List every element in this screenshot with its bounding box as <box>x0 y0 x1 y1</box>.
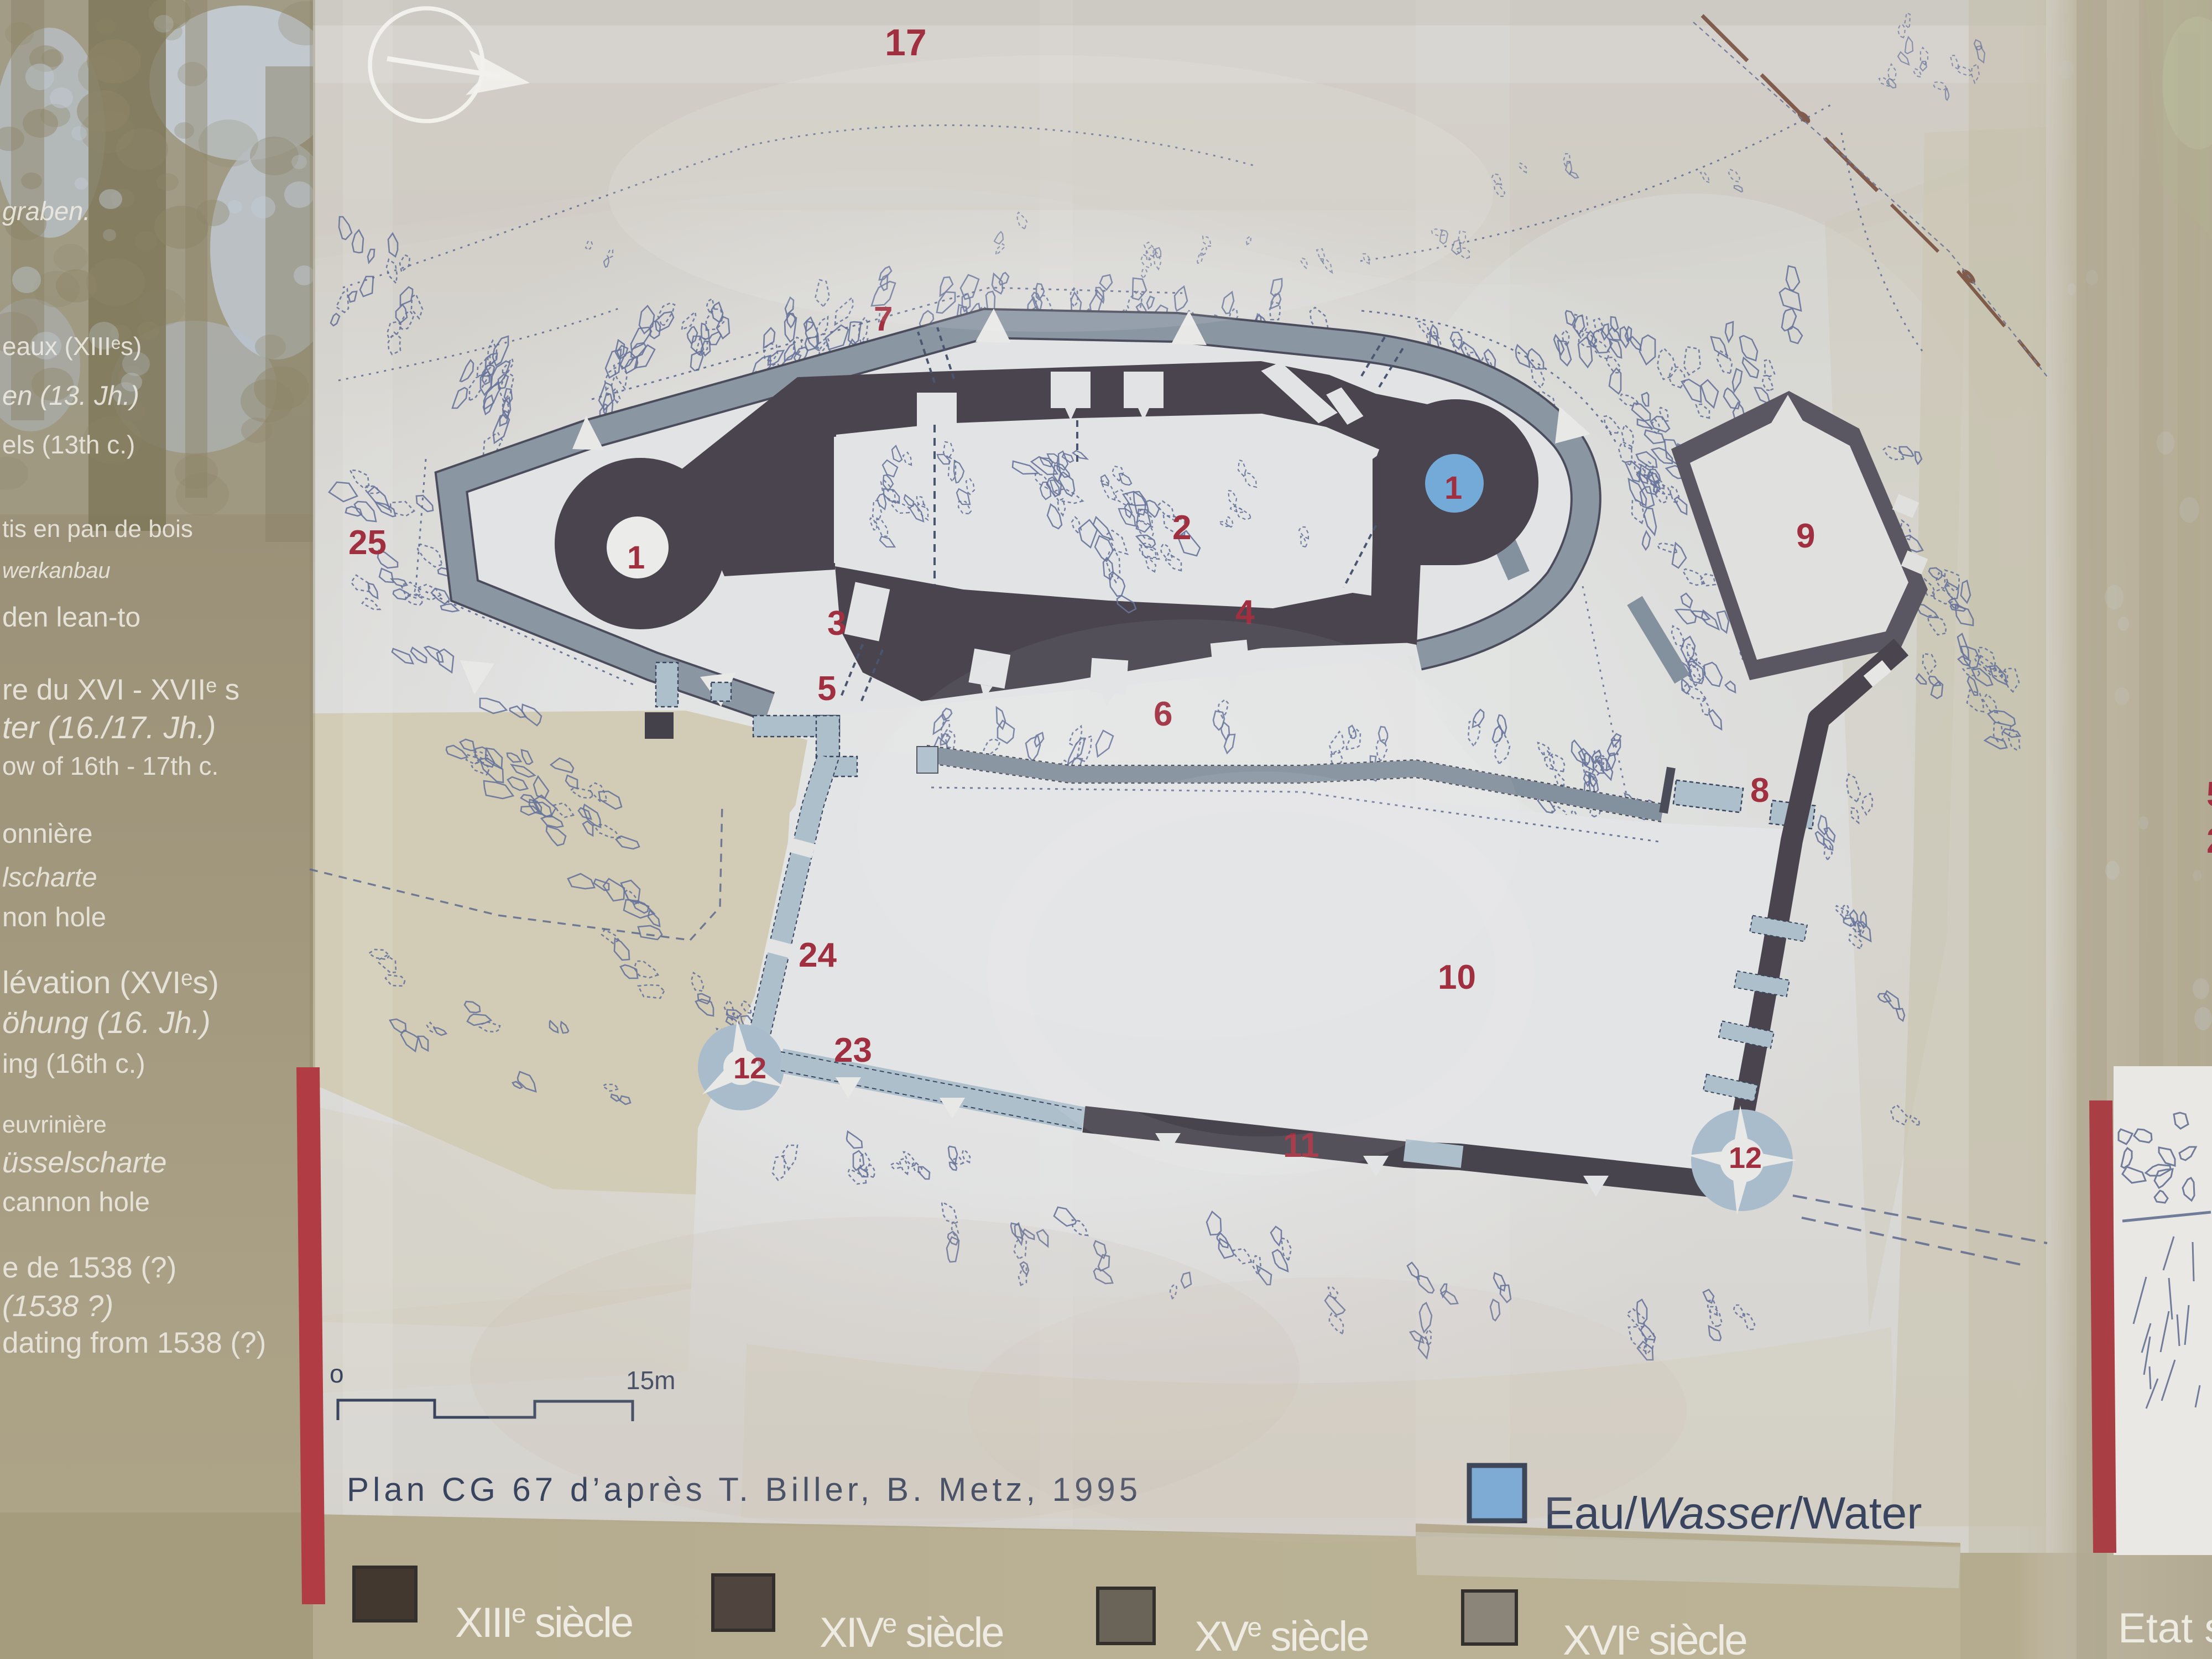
svg-text:XVe siècle: XVe siècle <box>1194 1613 1368 1659</box>
svg-text:Etat s: Etat s <box>2118 1605 2212 1652</box>
svg-text:12: 12 <box>1729 1141 1762 1175</box>
svg-text:ow of 16th - 17th c.: ow of 16th - 17th c. <box>2 752 218 780</box>
svg-text:XVIe siècle: XVIe siècle <box>1563 1617 1746 1659</box>
svg-text:XIVe siècle: XIVe siècle <box>820 1609 1003 1656</box>
svg-text:17: 17 <box>885 22 927 64</box>
svg-text:euvrinière: euvrinière <box>2 1112 107 1138</box>
svg-text:o: o <box>330 1359 344 1388</box>
svg-text:dating from 1538 (?): dating from 1538 (?) <box>2 1327 266 1359</box>
svg-text:öhung (16. Jh.): öhung (16. Jh.) <box>2 1005 211 1040</box>
svg-text:23: 23 <box>834 1031 872 1070</box>
svg-text:3: 3 <box>827 604 846 643</box>
svg-text:1: 1 <box>1444 470 1462 506</box>
svg-text:ing (16th c.): ing (16th c.) <box>2 1049 145 1079</box>
svg-text:24: 24 <box>799 936 837 974</box>
svg-text:lscharte: lscharte <box>2 863 97 893</box>
svg-text:9: 9 <box>1796 517 1815 555</box>
svg-text:cannon hole: cannon hole <box>2 1187 150 1217</box>
svg-text:5: 5 <box>817 670 836 708</box>
svg-text:den lean-to: den lean-to <box>2 602 140 633</box>
svg-text:5: 5 <box>2206 774 2212 814</box>
svg-text:2: 2 <box>2206 821 2212 860</box>
svg-text:onnière: onnière <box>2 819 92 849</box>
svg-text:en (13. Jh.): en (13. Jh.) <box>2 381 139 411</box>
svg-text:tis en pan de bois: tis en pan de bois <box>2 515 193 542</box>
svg-text:12: 12 <box>733 1052 766 1085</box>
svg-text:lévation (XVIᵉs): lévation (XVIᵉs) <box>2 965 219 1000</box>
svg-text:werkanbau: werkanbau <box>2 559 111 583</box>
svg-text:non hole: non hole <box>2 902 106 932</box>
svg-text:e de 1538 (?): e de 1538 (?) <box>2 1251 176 1284</box>
svg-text:üsselscharte: üsselscharte <box>2 1146 167 1179</box>
svg-text:25: 25 <box>348 524 387 562</box>
svg-text:8: 8 <box>1750 771 1769 810</box>
svg-text:XIIIe siècle: XIIIe siècle <box>455 1599 632 1646</box>
svg-text:(1538 ?): (1538 ?) <box>2 1290 113 1323</box>
svg-text:eaux (XIIIᵉs): eaux (XIIIᵉs) <box>2 332 142 361</box>
svg-text:graben.: graben. <box>2 196 90 226</box>
svg-text:2: 2 <box>1172 509 1191 547</box>
svg-text:els (13th c.): els (13th c.) <box>2 430 135 459</box>
svg-text:1: 1 <box>627 540 645 576</box>
svg-text:re du XVI - XVIIᵉ s: re du XVI - XVIIᵉ s <box>2 674 239 706</box>
svg-text:ter (16./17. Jh.): ter (16./17. Jh.) <box>2 710 216 745</box>
